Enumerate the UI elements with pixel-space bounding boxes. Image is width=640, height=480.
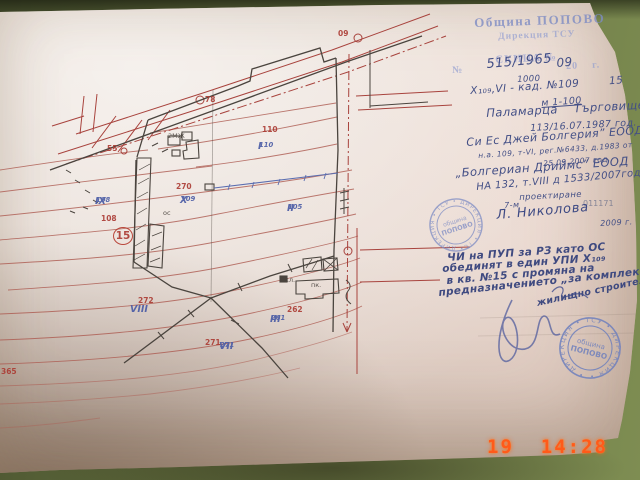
hw-office-stamp-line1: Община ПОПОВО (474, 11, 605, 29)
camera-timestamp: 19 14:28 (487, 436, 608, 458)
hw-sketch-number: 515/1965 (486, 52, 552, 71)
hw-sketch-year: 09 (556, 56, 573, 69)
hw-year2: 2009 г. (600, 218, 633, 228)
photo-of-cadastral-sketch: община ПОПОВО • ДИРЕКЦИЯ • ТСУ • ДИРЕКЦИ… (0, 0, 640, 480)
handwriting-layer: Община ПОПОВОДирекция ТСУСКИЦА №№20 г.51… (0, 0, 640, 480)
hw-parcel-line: Х₁₀₉,VI - кад. №109 15 (470, 75, 624, 96)
hw-place-line: Паламарца Търговище (486, 100, 640, 120)
hw-office-stamp-line2: Дирекция ТСУ (498, 30, 576, 42)
hw-form-number-sign: № (452, 66, 463, 76)
